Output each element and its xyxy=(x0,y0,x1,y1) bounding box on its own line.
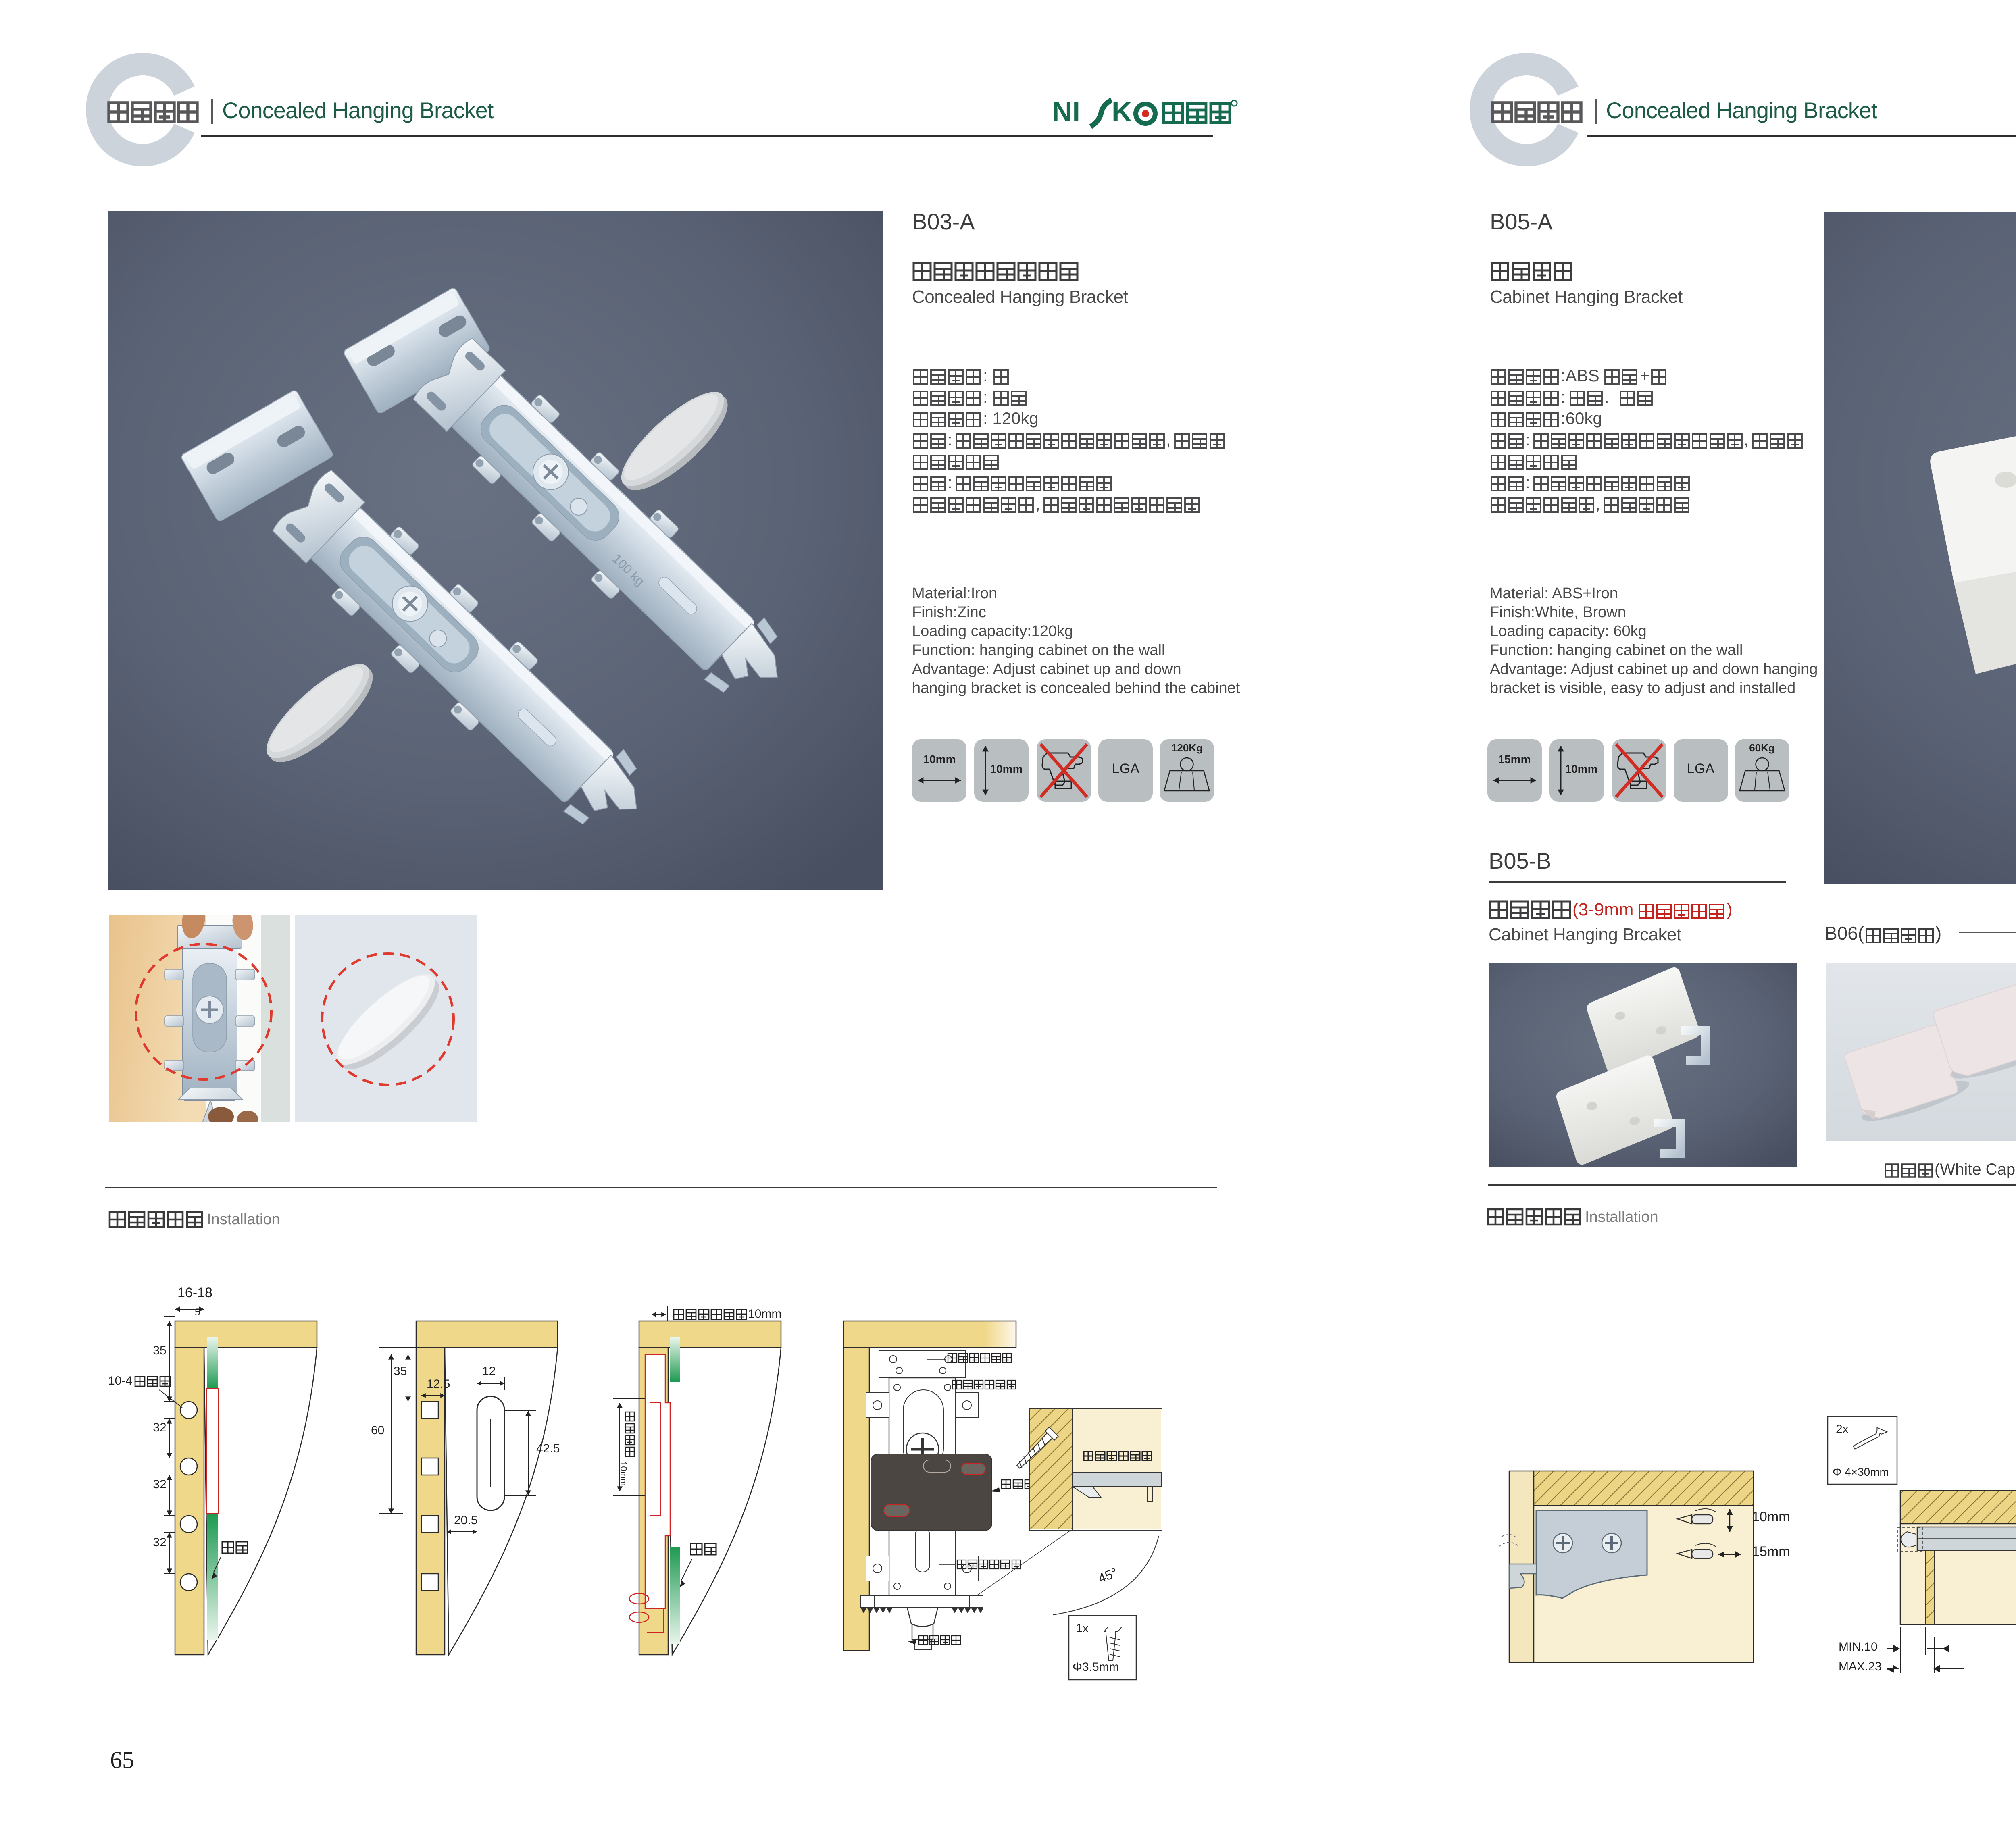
svg-text:32: 32 xyxy=(153,1478,166,1491)
svg-text:.: . xyxy=(1604,387,1609,406)
svg-text:120Kg: 120Kg xyxy=(1171,742,1203,754)
svg-text::: : xyxy=(983,387,988,406)
svg-text:Installation: Installation xyxy=(207,1211,280,1228)
svg-text:NI: NI xyxy=(1052,96,1080,127)
svg-text:60Kg: 60Kg xyxy=(1749,742,1775,754)
svg-text:32: 32 xyxy=(153,1536,166,1549)
svg-text:MAX.23: MAX.23 xyxy=(1839,1660,1882,1673)
svg-text:10mm: 10mm xyxy=(619,1461,629,1486)
svg-text:B05-A: B05-A xyxy=(1490,209,1553,234)
svg-text:35: 35 xyxy=(153,1344,166,1357)
svg-text:hanging bracket is concealed b: hanging bracket is concealed behind the … xyxy=(912,680,1240,697)
svg-text:Installation: Installation xyxy=(1585,1208,1658,1225)
svg-text:65: 65 xyxy=(110,1747,134,1773)
svg-text:,: , xyxy=(1595,494,1600,513)
svg-text:5: 5 xyxy=(195,1307,200,1318)
svg-text:10mm: 10mm xyxy=(1565,763,1598,775)
svg-text:Material:Iron: Material:Iron xyxy=(912,585,997,602)
svg-text::: : xyxy=(983,366,988,385)
svg-text:Φ 4×30mm: Φ 4×30mm xyxy=(1833,1466,1889,1478)
svg-text:MIN.10: MIN.10 xyxy=(1839,1640,1878,1654)
svg-text:10-4: 10-4 xyxy=(108,1374,132,1387)
svg-text:B03-A: B03-A xyxy=(912,209,975,234)
svg-text:10mm: 10mm xyxy=(1752,1509,1790,1525)
svg-text:Concealed Hanging Bracket: Concealed Hanging Bracket xyxy=(222,98,494,123)
svg-text::: : xyxy=(1525,430,1530,449)
svg-text::: : xyxy=(948,473,952,492)
svg-text:LGA: LGA xyxy=(1687,761,1714,776)
svg-text:12.5: 12.5 xyxy=(427,1377,450,1391)
svg-text:Advantage: Adjust cabinet up a: Advantage: Adjust cabinet up and down ha… xyxy=(1490,661,1818,678)
svg-text:): ) xyxy=(1935,923,1941,944)
svg-text:bracket is visible, easy to ad: bracket is visible, easy to adjust and i… xyxy=(1490,680,1795,697)
svg-text:20.5: 20.5 xyxy=(454,1514,477,1527)
svg-text:: 120kg: : 120kg xyxy=(983,409,1039,428)
svg-text:15mm: 15mm xyxy=(1752,1544,1790,1559)
svg-text:2x: 2x xyxy=(1836,1423,1849,1436)
svg-text:(3-9mm: (3-9mm xyxy=(1572,900,1634,919)
svg-text:10mm: 10mm xyxy=(990,763,1023,775)
svg-text:(White Cap): (White Cap) xyxy=(1935,1161,2016,1178)
svg-text:15mm: 15mm xyxy=(1498,753,1531,765)
svg-text::60kg: :60kg xyxy=(1561,409,1602,428)
svg-text::: : xyxy=(1525,473,1530,492)
svg-text::: : xyxy=(1561,387,1566,406)
svg-text:42.5: 42.5 xyxy=(536,1442,560,1455)
svg-text:): ) xyxy=(1727,900,1733,919)
svg-text:16-18: 16-18 xyxy=(177,1285,212,1300)
svg-text::ABS: :ABS xyxy=(1561,366,1599,385)
svg-text:Concealed Hanging Bracket: Concealed Hanging Bracket xyxy=(912,287,1128,307)
svg-text:32: 32 xyxy=(153,1421,166,1434)
svg-text::: : xyxy=(948,430,952,449)
svg-text:Cabinet Hanging Bracket: Cabinet Hanging Bracket xyxy=(1490,287,1683,307)
svg-text:35: 35 xyxy=(394,1364,407,1378)
svg-text:LGA: LGA xyxy=(1112,761,1139,776)
svg-text:Finish:Zinc: Finish:Zinc xyxy=(912,604,986,621)
svg-text:Concealed Hanging Bracket: Concealed Hanging Bracket xyxy=(1606,98,1878,123)
svg-text:+: + xyxy=(1640,366,1650,385)
svg-text:10mm: 10mm xyxy=(923,753,956,765)
svg-text:Material: ABS+Iron: Material: ABS+Iron xyxy=(1490,585,1618,602)
svg-text:,: , xyxy=(1035,494,1040,513)
svg-text:1x: 1x xyxy=(1076,1622,1089,1635)
svg-text:Function: hanging cabinet on t: Function: hanging cabinet on the wall xyxy=(912,642,1165,659)
svg-text:60: 60 xyxy=(371,1424,384,1437)
svg-text:Loading capacity: 60kg: Loading capacity: 60kg xyxy=(1490,623,1647,640)
svg-text:Cabinet Hanging Brcaket: Cabinet Hanging Brcaket xyxy=(1489,925,1681,944)
svg-text:B06(: B06( xyxy=(1825,923,1864,944)
svg-text:Loading capacity:120kg: Loading capacity:120kg xyxy=(912,623,1073,640)
svg-text:12: 12 xyxy=(482,1364,496,1378)
svg-text:B05-B: B05-B xyxy=(1489,848,1552,874)
svg-text:Function: hanging cabinet on t: Function: hanging cabinet on the wall xyxy=(1490,642,1743,659)
svg-text:10mm: 10mm xyxy=(748,1307,781,1321)
svg-text:,: , xyxy=(1744,430,1749,449)
svg-text:,: , xyxy=(1166,430,1171,449)
svg-text:K: K xyxy=(1112,96,1132,127)
svg-text:Finish:White, Brown: Finish:White, Brown xyxy=(1490,604,1626,621)
svg-text:Advantage: Adjust cabinet up a: Advantage: Adjust cabinet up and down xyxy=(912,661,1181,678)
svg-text:Φ3.5mm: Φ3.5mm xyxy=(1073,1660,1119,1674)
